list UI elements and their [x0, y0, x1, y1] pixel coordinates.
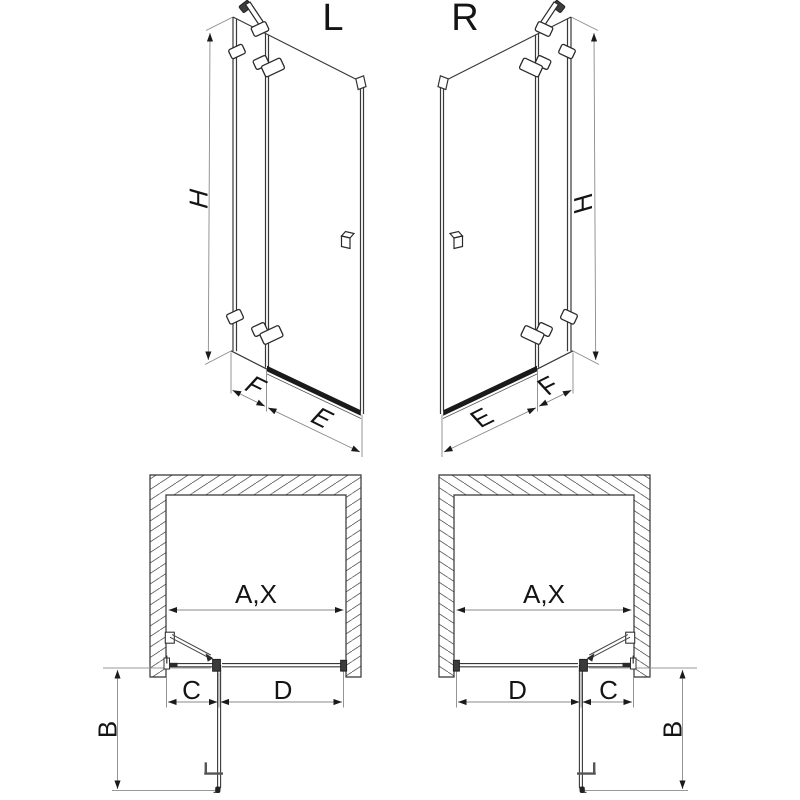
d-dim-label-left: D: [274, 675, 293, 705]
technical-diagram-canvas: L R H H F E F E A,X A,X C D D C B B: [0, 0, 800, 800]
plan-left-view: [103, 475, 361, 793]
c-dim-label-right: C: [599, 675, 618, 705]
d-dim-label-right: D: [508, 675, 527, 705]
iso-right-view: [438, 0, 599, 457]
iso-left-view: [205, 0, 366, 457]
plan-right-view: [439, 475, 697, 793]
c-dim-label-left: C: [182, 675, 201, 705]
door-width-label-left: E: [304, 403, 340, 433]
opening-width-label-right: A,X: [523, 579, 565, 609]
b-dim-label-left: B: [93, 721, 123, 738]
variant-label-right: R: [451, 0, 478, 39]
height-dim-label-right: H: [568, 190, 597, 217]
variant-label-left: L: [322, 0, 343, 39]
door-width-label-right: E: [464, 403, 500, 433]
b-dim-label-right: B: [658, 721, 688, 738]
opening-width-label-left: A,X: [235, 579, 277, 609]
shower-door-technical-drawing-page: L R H H F E F E A,X A,X C D D C B B: [0, 0, 800, 800]
